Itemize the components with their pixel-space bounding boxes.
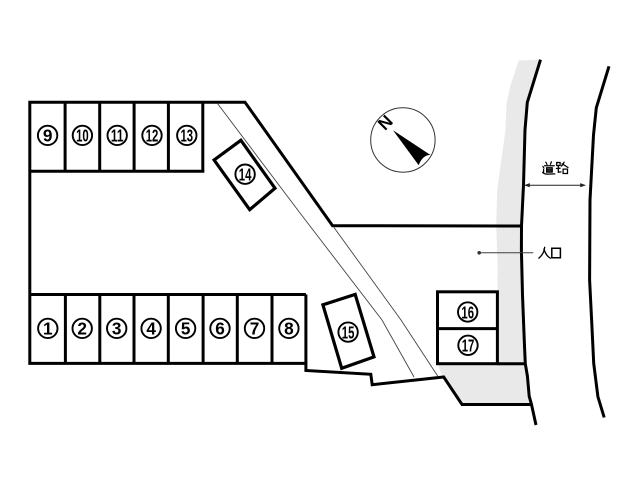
svg-text:3: 3 bbox=[112, 319, 122, 339]
svg-text:15: 15 bbox=[342, 322, 355, 342]
svg-text:10: 10 bbox=[76, 126, 89, 146]
svg-text:5: 5 bbox=[181, 319, 191, 339]
svg-text:17: 17 bbox=[462, 336, 475, 356]
svg-text:9: 9 bbox=[43, 126, 53, 146]
svg-text:1: 1 bbox=[43, 319, 53, 339]
svg-text:2: 2 bbox=[77, 319, 87, 339]
svg-text:16: 16 bbox=[461, 302, 474, 322]
svg-text:11: 11 bbox=[111, 126, 124, 146]
svg-text:6: 6 bbox=[215, 319, 225, 339]
svg-text:7: 7 bbox=[250, 319, 260, 339]
svg-text:8: 8 bbox=[284, 319, 294, 339]
svg-text:12: 12 bbox=[146, 126, 159, 146]
svg-text:14: 14 bbox=[239, 165, 252, 185]
svg-text:13: 13 bbox=[181, 126, 194, 146]
svg-text:4: 4 bbox=[146, 319, 156, 339]
